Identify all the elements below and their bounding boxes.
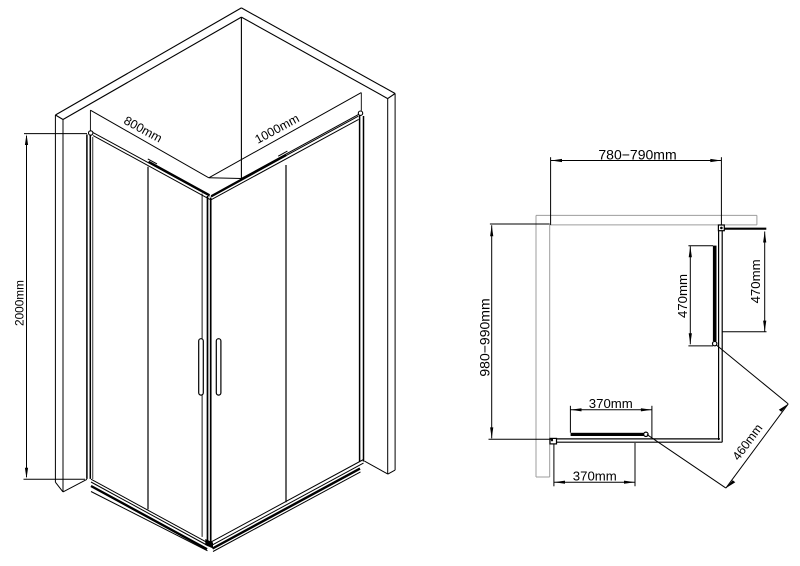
svg-text:470mm: 470mm (675, 274, 690, 318)
svg-text:370mm: 370mm (573, 469, 617, 484)
svg-text:470mm: 470mm (748, 259, 763, 303)
svg-text:370mm: 370mm (589, 396, 633, 411)
svg-text:780−790mm: 780−790mm (598, 146, 676, 162)
svg-text:2000mm: 2000mm (13, 280, 27, 326)
svg-text:980−990mm: 980−990mm (476, 298, 492, 376)
